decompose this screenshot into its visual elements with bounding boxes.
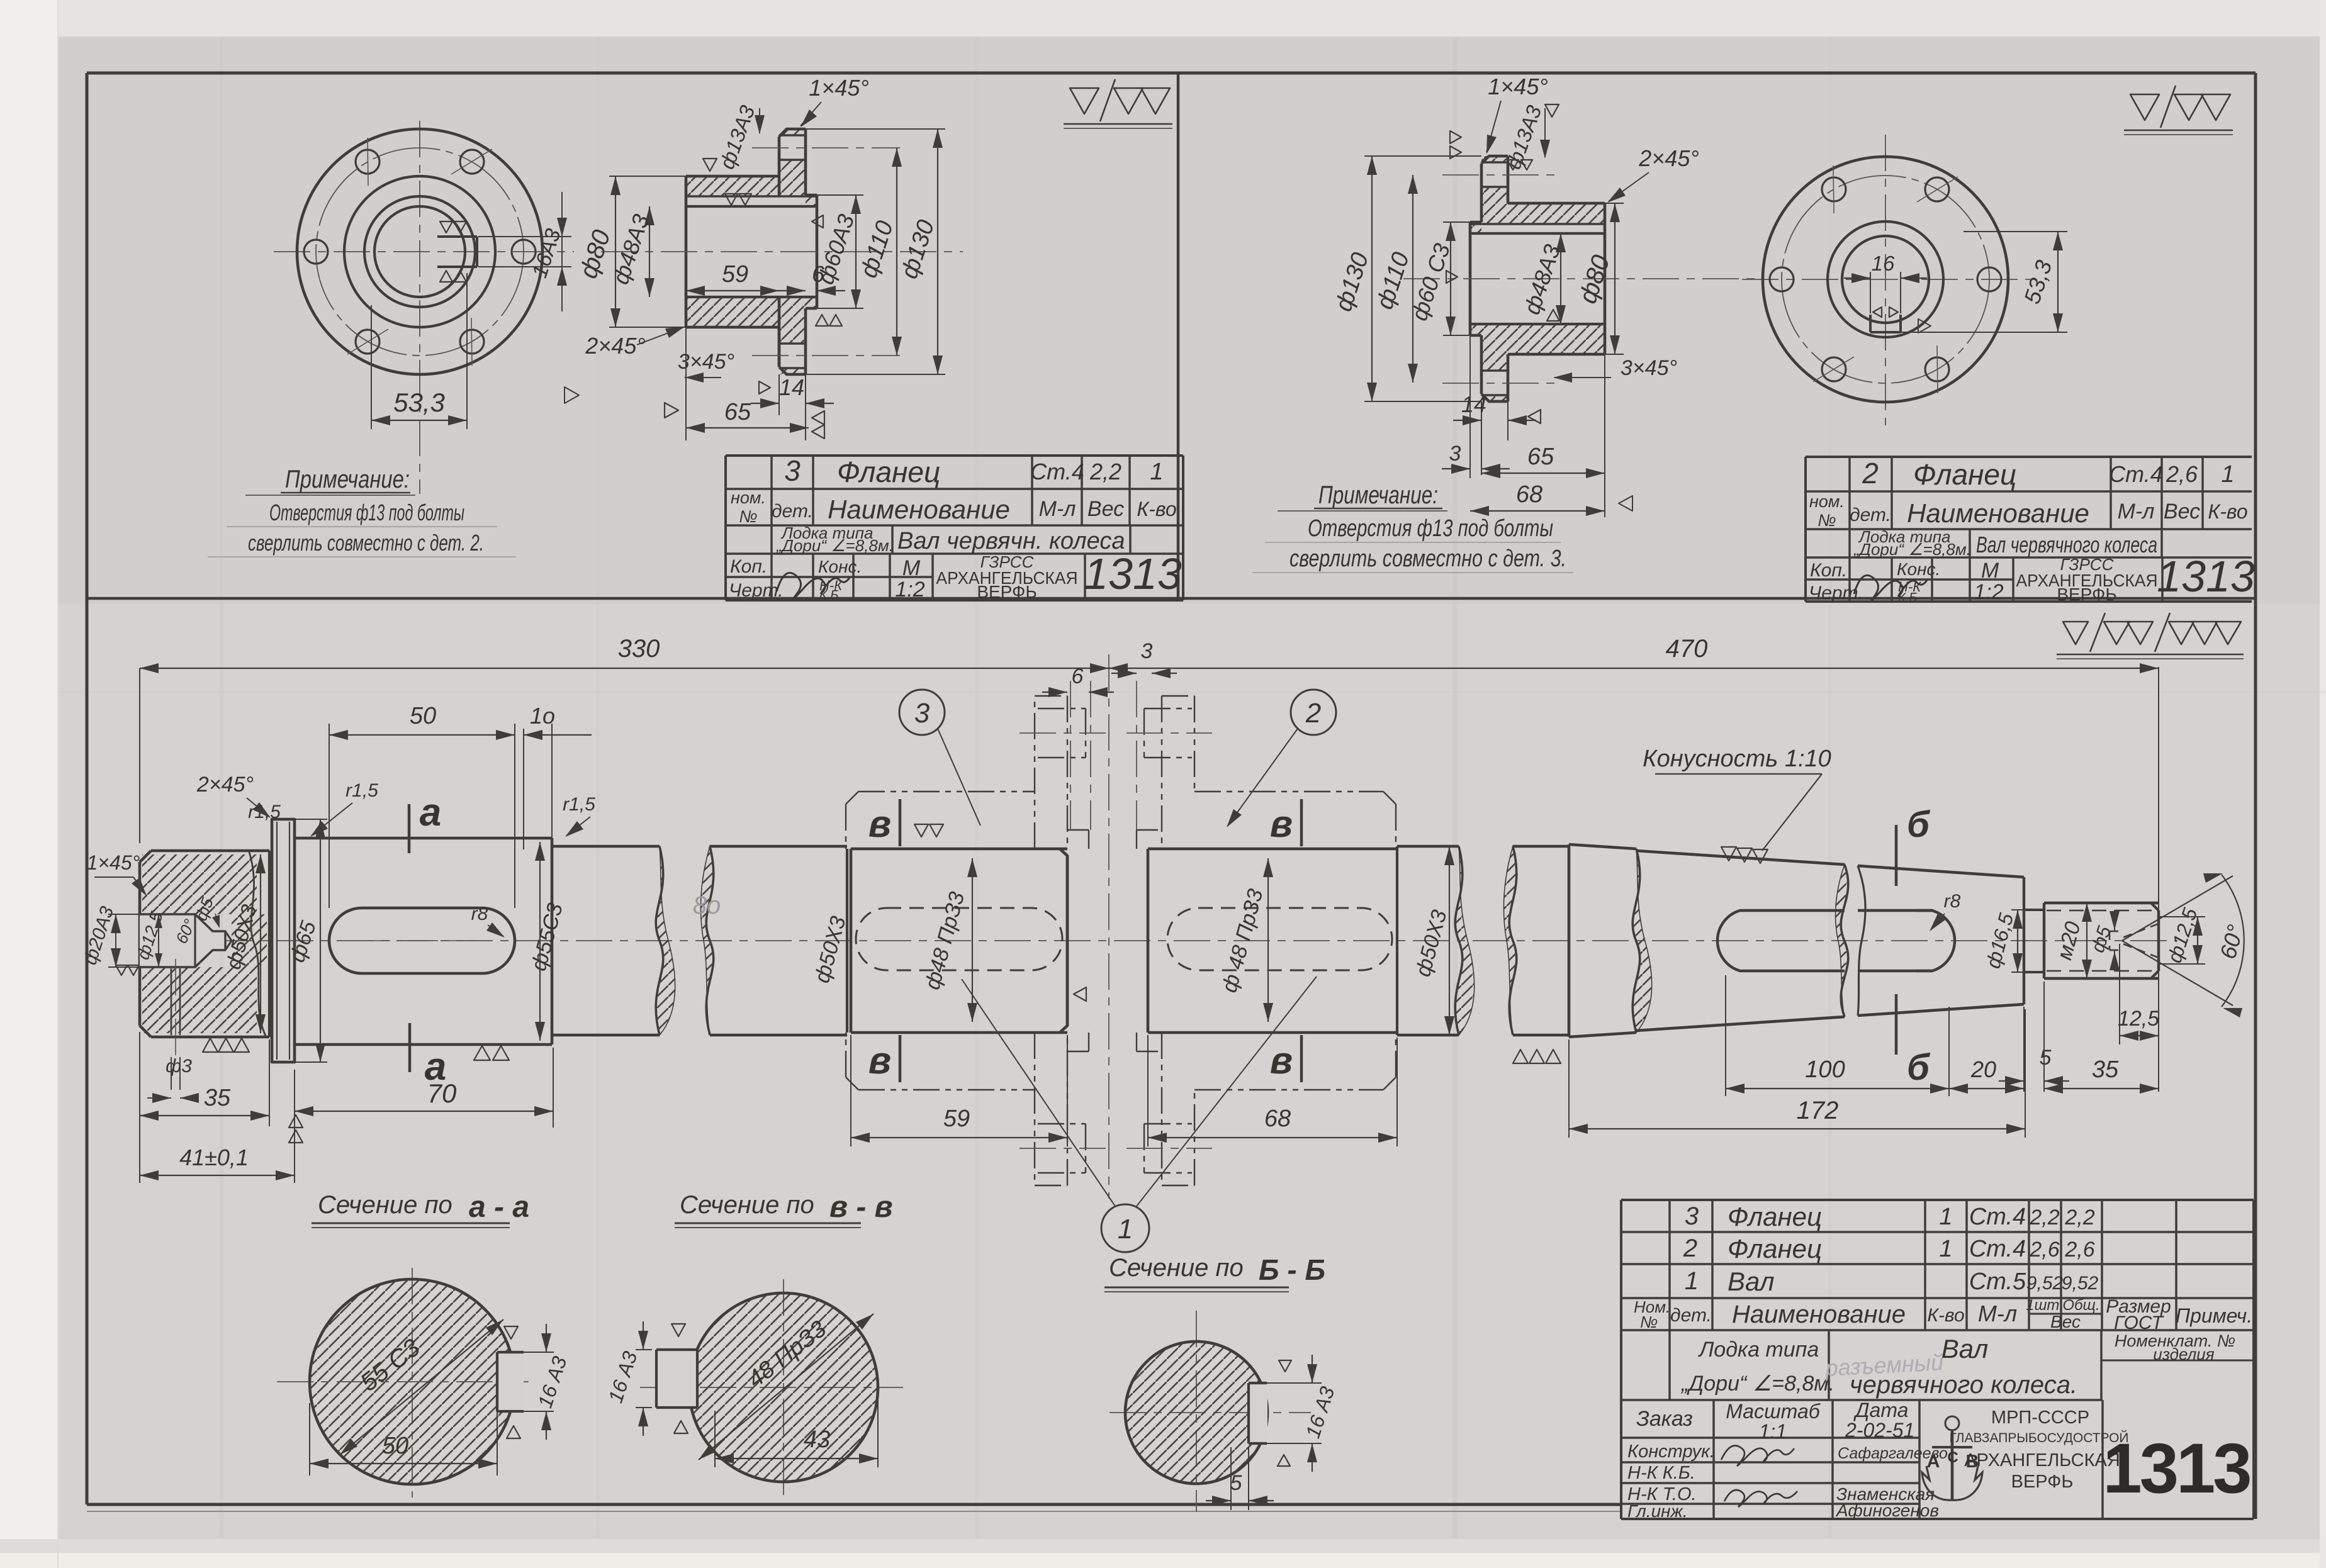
- svg-text:68: 68: [1264, 1106, 1291, 1132]
- svg-text:59: 59: [722, 261, 748, 288]
- svg-text:Ст.4: Ст.4: [1969, 1236, 2026, 1262]
- svg-text:Примеч.: Примеч.: [2176, 1304, 2252, 1327]
- svg-text:9,52: 9,52: [2062, 1273, 2099, 1294]
- svg-text:Конс.: Конс.: [1897, 559, 1940, 579]
- svg-text:50: 50: [382, 1433, 408, 1459]
- svg-text:„Дори“ ∠=8,8м.: „Дори“ ∠=8,8м.: [1853, 540, 1971, 559]
- svg-text:2: 2: [1305, 698, 1321, 729]
- svg-text:Вес: Вес: [2164, 500, 2200, 524]
- svg-text:№: №: [1640, 1313, 1658, 1331]
- svg-text:Наименование: Наименование: [1907, 498, 2089, 528]
- svg-text:r8: r8: [471, 904, 488, 924]
- svg-text:Примечание:: Примечание:: [1318, 481, 1438, 509]
- svg-text:1шт.: 1шт.: [2026, 1297, 2064, 1314]
- svg-text:Конусность 1:10: Конусность 1:10: [1643, 746, 1831, 772]
- svg-text:16: 16: [1872, 252, 1895, 275]
- svg-text:70: 70: [427, 1078, 457, 1108]
- svg-text:дет.: дет.: [1670, 1305, 1712, 1326]
- svg-text:3: 3: [1685, 1202, 1699, 1230]
- svg-text:1о: 1о: [530, 703, 555, 729]
- svg-text:1×45°: 1×45°: [87, 851, 140, 874]
- svg-text:Отверстия ф13 под болты: Отверстия ф13 под болты: [1308, 515, 1553, 542]
- svg-text:1: 1: [1939, 1236, 1952, 1262]
- svg-text:41±0,1: 41±0,1: [179, 1145, 249, 1170]
- svg-text:б: б: [1907, 804, 1931, 845]
- svg-text:в - в: в - в: [829, 1190, 893, 1224]
- svg-text:1:2: 1:2: [1974, 580, 2003, 604]
- svg-text:М-л: М-л: [1978, 1301, 2017, 1326]
- svg-text:Лодка типа: Лодка типа: [1698, 1338, 1819, 1362]
- svg-text:3: 3: [914, 698, 930, 729]
- svg-text:А: А: [1927, 1452, 1940, 1472]
- svg-text:Сечение по: Сечение по: [1109, 1254, 1244, 1282]
- svg-text:59: 59: [943, 1106, 970, 1132]
- svg-text:Ст.5: Ст.5: [1969, 1268, 2026, 1295]
- svg-text:а - а: а - а: [469, 1190, 529, 1224]
- svg-text:65: 65: [724, 399, 751, 425]
- svg-text:Сечение по: Сечение по: [318, 1191, 452, 1219]
- svg-text:Вес: Вес: [1087, 497, 1124, 521]
- svg-text:АРХАНГЕЛЬСКАЯ: АРХАНГЕЛЬСКАЯ: [1964, 1450, 2120, 1470]
- svg-text:ВЕРФЬ: ВЕРФЬ: [2011, 1472, 2074, 1492]
- svg-text:r8: r8: [1944, 891, 1961, 912]
- svg-text:35: 35: [204, 1085, 231, 1111]
- svg-text:3×45°: 3×45°: [1621, 356, 1677, 380]
- svg-text:Ст.4: Ст.4: [1030, 459, 1084, 484]
- svg-text:Фланец: Фланец: [1913, 458, 2016, 491]
- svg-text:2,6: 2,6: [2166, 461, 2198, 487]
- svg-text:К-во: К-во: [1137, 498, 1176, 520]
- svg-text:Гл.инж.: Гл.инж.: [1627, 1501, 1688, 1521]
- svg-text:в: в: [868, 803, 891, 845]
- svg-text:2-02-51: 2-02-51: [1845, 1419, 1914, 1442]
- svg-text:ВЕРФЬ: ВЕРФЬ: [977, 582, 1037, 602]
- svg-text:а: а: [420, 791, 441, 834]
- svg-text:„Дори“ ∠=8,8м.: „Дори“ ∠=8,8м.: [776, 536, 894, 555]
- svg-text:r1,5: r1,5: [563, 794, 595, 815]
- svg-text:2×45°: 2×45°: [1638, 145, 1699, 171]
- svg-text:8о: 8о: [693, 892, 721, 919]
- svg-text:Б - Б: Б - Б: [1259, 1253, 1325, 1286]
- svg-text:„Дори“ ∠=8,8м.: „Дори“ ∠=8,8м.: [1680, 1372, 1834, 1396]
- svg-text:М-л: М-л: [1039, 497, 1076, 521]
- svg-text:68: 68: [1516, 481, 1542, 508]
- svg-text:МРП-СССР: МРП-СССР: [1991, 1408, 2089, 1428]
- svg-text:К-во: К-во: [2208, 500, 2247, 523]
- svg-text:r1,5: r1,5: [248, 802, 281, 822]
- svg-text:в: в: [1270, 1039, 1293, 1082]
- svg-text:1313: 1313: [2157, 552, 2255, 601]
- svg-text:Фланец: Фланец: [1728, 1234, 1822, 1263]
- svg-text:2: 2: [1683, 1235, 1697, 1262]
- svg-text:172: 172: [1797, 1097, 1839, 1124]
- svg-text:2,2: 2,2: [2064, 1206, 2094, 1229]
- svg-text:1: 1: [1685, 1267, 1699, 1295]
- svg-text:Фланец: Фланец: [1728, 1202, 1822, 1231]
- svg-text:14: 14: [1461, 391, 1486, 417]
- svg-text:Масштаб: Масштаб: [1726, 1400, 1820, 1423]
- svg-text:1313: 1313: [1084, 549, 1182, 598]
- svg-text:14: 14: [779, 374, 804, 400]
- svg-text:Вал червячного колеса: Вал червячного колеса: [1976, 532, 2157, 557]
- svg-text:б: б: [1907, 1047, 1931, 1088]
- svg-text:1:2: 1:2: [895, 578, 924, 602]
- svg-text:3: 3: [784, 454, 801, 487]
- svg-text:Примечание:: Примечание:: [285, 466, 410, 493]
- svg-text:Фланец: Фланец: [837, 456, 940, 488]
- svg-text:1313: 1313: [2103, 1429, 2250, 1508]
- svg-text:в: в: [868, 1039, 891, 1082]
- svg-text:№: №: [739, 507, 757, 526]
- svg-text:9,52: 9,52: [2026, 1273, 2064, 1294]
- svg-text:ГОСТ: ГОСТ: [2114, 1313, 2164, 1333]
- svg-text:100: 100: [1805, 1056, 1845, 1083]
- svg-text:ф3: ф3: [166, 1056, 192, 1077]
- svg-text:сверлить совместно с дет. 3.: сверлить совместно с дет. 3.: [1289, 546, 1566, 572]
- svg-text:Конс.: Конс.: [818, 557, 862, 576]
- svg-text:Коп.: Коп.: [730, 556, 767, 577]
- svg-text:Ст.4: Ст.4: [2109, 461, 2163, 487]
- svg-text:r1,5: r1,5: [346, 780, 378, 801]
- svg-text:2×45°: 2×45°: [196, 773, 254, 797]
- svg-text:в: в: [1270, 803, 1293, 845]
- svg-text:ВЕРФЬ: ВЕРФЬ: [2057, 585, 2116, 604]
- svg-text:1:1: 1:1: [1759, 1420, 1787, 1443]
- svg-text:3: 3: [1141, 639, 1153, 663]
- svg-text:Общ.: Общ.: [2062, 1297, 2099, 1314]
- svg-text:Афиногенов: Афиногенов: [1835, 1501, 1939, 1520]
- svg-text:1: 1: [1118, 1214, 1133, 1245]
- svg-text:Наименование: Наименование: [1732, 1301, 1906, 1328]
- svg-text:Сечение по: Сечение по: [680, 1191, 814, 1219]
- svg-text:2×45°: 2×45°: [585, 333, 645, 359]
- svg-text:№: №: [1818, 511, 1836, 530]
- svg-text:330: 330: [618, 635, 660, 663]
- svg-text:Заказ: Заказ: [1636, 1407, 1693, 1431]
- svg-text:2,2: 2,2: [2029, 1206, 2059, 1229]
- svg-text:изделия: изделия: [2153, 1345, 2214, 1364]
- svg-text:1: 1: [1939, 1204, 1952, 1230]
- svg-text:2: 2: [1862, 457, 1879, 490]
- svg-text:М: М: [1981, 559, 1999, 583]
- svg-text:ГЛАВЗАПРЫБОСУДОСТРОЙ: ГЛАВЗАПРЫБОСУДОСТРОЙ: [1949, 1430, 2128, 1445]
- svg-text:Отверстия ф13 под болты: Отверстия ф13 под болты: [269, 500, 464, 525]
- svg-text:2,6: 2,6: [2064, 1238, 2094, 1262]
- svg-text:К-во: К-во: [1927, 1305, 1964, 1326]
- svg-text:5: 5: [2040, 1046, 2052, 1070]
- svg-text:Коп.: Коп.: [1810, 560, 1847, 581]
- svg-text:1×45°: 1×45°: [1488, 74, 1548, 99]
- svg-text:Ст.4: Ст.4: [1969, 1204, 2026, 1230]
- svg-text:2,2: 2,2: [1089, 459, 1121, 484]
- svg-text:ном.: ном.: [1809, 492, 1845, 511]
- svg-text:65: 65: [1527, 444, 1554, 470]
- svg-text:Вал: Вал: [1728, 1267, 1775, 1296]
- svg-text:ном.: ном.: [731, 488, 766, 507]
- svg-text:1: 1: [2221, 461, 2234, 488]
- svg-text:М: М: [902, 556, 921, 580]
- svg-text:43: 43: [804, 1426, 830, 1453]
- svg-text:М-л: М-л: [2118, 500, 2155, 524]
- svg-text:Вес: Вес: [2050, 1312, 2081, 1331]
- svg-text:сверлить совместно с дет. 2.: сверлить совместно с дет. 2.: [248, 530, 484, 556]
- svg-text:Конструк.: Конструк.: [1627, 1442, 1715, 1462]
- svg-text:Наименование: Наименование: [828, 495, 1010, 524]
- svg-text:1×45°: 1×45°: [809, 75, 868, 101]
- svg-text:35: 35: [2092, 1056, 2119, 1083]
- svg-text:20: 20: [1970, 1056, 1996, 1082]
- svg-text:2,6: 2,6: [2029, 1238, 2059, 1262]
- svg-text:Н-К К.Б.: Н-К К.Б.: [1627, 1463, 1695, 1483]
- svg-text:3: 3: [1449, 442, 1461, 466]
- svg-text:дет.: дет.: [1850, 505, 1891, 525]
- svg-text:12,5: 12,5: [2118, 1007, 2159, 1031]
- svg-text:1: 1: [1150, 459, 1163, 485]
- svg-text:53,3: 53,3: [393, 388, 445, 417]
- svg-text:Дата: Дата: [1853, 1399, 1908, 1421]
- svg-text:дет.: дет.: [772, 501, 813, 522]
- svg-text:470: 470: [1666, 635, 1708, 663]
- svg-text:5: 5: [1230, 1471, 1242, 1495]
- svg-text:Черт.: Черт.: [729, 580, 784, 601]
- svg-text:Вал: Вал: [1941, 1334, 1989, 1364]
- svg-text:С: С: [1947, 1449, 1958, 1466]
- svg-text:50: 50: [410, 703, 436, 729]
